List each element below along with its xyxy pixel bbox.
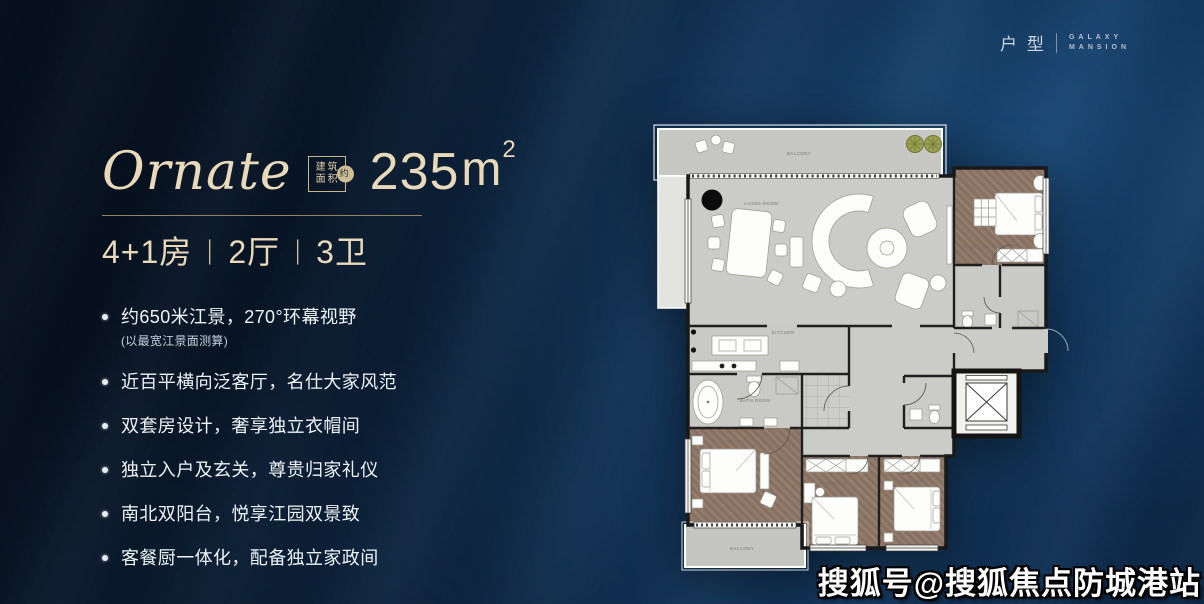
brand-block: 户型 GALAXY MANSION bbox=[1000, 30, 1130, 55]
toilet bbox=[963, 316, 973, 329]
corridor-floor bbox=[802, 428, 954, 456]
toilet bbox=[930, 411, 940, 424]
brand-line1: GALAXY bbox=[1069, 34, 1130, 41]
feature-item: 双套房设计，奢享独立衣帽间 bbox=[102, 416, 438, 437]
feature-note: (以最宽江景面测算) bbox=[121, 332, 357, 349]
floorplan-image: BALCONY BALCONY bbox=[652, 121, 1050, 573]
title-divider bbox=[102, 215, 422, 216]
brand-line2: MANSION bbox=[1069, 44, 1130, 51]
layout-separator: | bbox=[296, 235, 300, 266]
marketing-hero: 户型 GALAXY MANSION Ornate 建筑 面积 约 235 m 2… bbox=[0, 0, 1204, 604]
watermark: 搜狐号@搜狐焦点防城港站 bbox=[818, 558, 1201, 603]
left-panel: Ornate 建筑 面积 约 235 m 2 4+1房 | 2厅 | 3卫 bbox=[102, 146, 438, 592]
balcony-bottom: BALCONY bbox=[682, 522, 808, 570]
sink bbox=[910, 409, 922, 420]
kitchen-label: KITCHEN bbox=[772, 330, 795, 335]
bullet-dot-icon bbox=[102, 314, 108, 320]
dining-table bbox=[726, 208, 773, 278]
bedroom-label: BEDROOM bbox=[720, 439, 746, 444]
feature-list: 约650米江景，270°环幕视野 (以最宽江景面测算) 近百平横向泛客厅，名仕大… bbox=[102, 307, 438, 569]
feature-text: 客餐厨一体化，配备独立家政间 bbox=[121, 548, 379, 569]
balcony-label: BALCONY bbox=[787, 151, 811, 156]
fridge bbox=[780, 361, 799, 371]
wardrobe bbox=[974, 199, 996, 226]
bullet-dot-icon bbox=[102, 379, 108, 385]
area-figure: 235 m 2 bbox=[370, 146, 516, 198]
master-label: MASTER ROOM bbox=[958, 244, 996, 249]
feature-text: 约650米江景，270°环幕视野 bbox=[121, 307, 357, 327]
feature-item: 南北双阳台，悦享江园双景致 bbox=[102, 504, 438, 525]
bath-label: BATH ROOM bbox=[740, 398, 770, 403]
console-table bbox=[790, 237, 803, 267]
column-icon bbox=[702, 190, 723, 211]
living-label: LIVING ROOM bbox=[744, 201, 779, 206]
bench bbox=[760, 453, 769, 489]
sink bbox=[740, 418, 753, 426]
multi-room-floor bbox=[802, 374, 849, 428]
media-wall bbox=[947, 206, 952, 264]
bedroom-label: BEDROOM bbox=[820, 481, 846, 486]
balcony-label: BALCONY bbox=[730, 546, 754, 551]
halls-count: 2厅 bbox=[228, 227, 280, 273]
round-table bbox=[867, 228, 907, 268]
layout-summary: 4+1房 | 2厅 | 3卫 bbox=[102, 227, 438, 273]
baths-count: 3卫 bbox=[316, 227, 368, 273]
feature-item: 客餐厨一体化，配备独立家政间 bbox=[102, 548, 438, 569]
area-value: 235 bbox=[370, 146, 460, 198]
wardrobe bbox=[806, 459, 868, 472]
brand-divider bbox=[1056, 33, 1057, 53]
area-unit: m bbox=[461, 146, 501, 194]
pouf bbox=[830, 281, 846, 297]
layout-separator: | bbox=[208, 235, 212, 266]
plant-icon bbox=[925, 136, 942, 153]
feature-text: 近百平横向泛客厅，名仕大家风范 bbox=[121, 372, 397, 393]
feature-item: 近百平横向泛客厅，名仕大家风范 bbox=[102, 372, 438, 393]
bullet-dot-icon bbox=[102, 467, 108, 473]
feature-item: 约650米江景，270°环幕视野 (以最宽江景面测算) bbox=[102, 307, 438, 349]
plant-icon bbox=[907, 136, 924, 153]
bullet-dot-icon bbox=[102, 423, 108, 429]
approx-tag-icon: 约 bbox=[337, 166, 354, 183]
foyer-floor bbox=[954, 328, 1046, 371]
area-badge: 建筑 面积 约 bbox=[308, 156, 346, 192]
elevator-shaft bbox=[954, 371, 1019, 436]
rooms-count: 4+1房 bbox=[102, 227, 192, 273]
bullet-dot-icon bbox=[102, 555, 108, 561]
sink bbox=[764, 418, 777, 426]
bullet-dot-icon bbox=[102, 511, 108, 517]
wardrobe bbox=[884, 459, 940, 472]
floorplan-svg: BALCONY BALCONY bbox=[652, 121, 1050, 573]
feature-text: 南北双阳台，悦享江园双景致 bbox=[121, 504, 360, 525]
product-title: Ornate bbox=[102, 146, 292, 198]
area-superscript: 2 bbox=[502, 138, 515, 162]
toilet-tank bbox=[747, 376, 761, 382]
brand-name: GALAXY MANSION bbox=[1069, 34, 1130, 51]
feature-text: 独立入户及玄关，尊贵归家礼仪 bbox=[121, 460, 379, 481]
feature-item: 独立入户及玄关，尊贵归家礼仪 bbox=[102, 460, 438, 481]
feature-text: 双套房设计，奢享独立衣帽间 bbox=[121, 416, 360, 437]
sink bbox=[985, 314, 996, 325]
bedroom-label: BEDROOM bbox=[898, 479, 924, 484]
title-row: Ornate 建筑 面积 约 235 m 2 bbox=[102, 146, 438, 198]
toilet bbox=[748, 382, 760, 397]
category-label: 户型 bbox=[1000, 30, 1054, 55]
kitchen-island bbox=[712, 336, 768, 355]
